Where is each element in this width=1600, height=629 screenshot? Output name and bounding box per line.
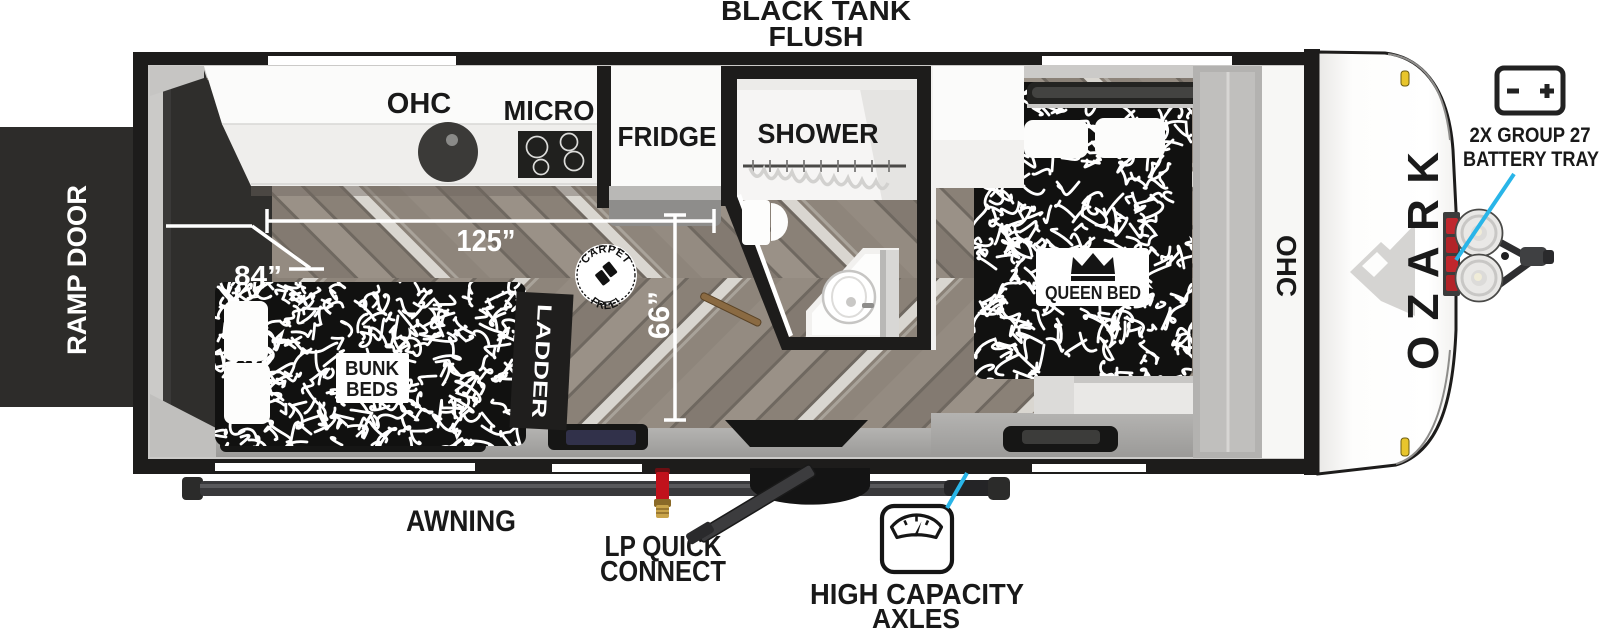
svg-text:AWNING: AWNING (406, 505, 516, 538)
svg-text:MICRO: MICRO (504, 95, 595, 126)
svg-text:OHC: OHC (387, 88, 452, 120)
svg-text:FLUSH: FLUSH (769, 21, 864, 52)
svg-text:FRIDGE: FRIDGE (618, 121, 717, 152)
svg-text:RAMP DOOR: RAMP DOOR (62, 185, 92, 355)
svg-text:BATTERY TRAY: BATTERY TRAY (1463, 147, 1599, 171)
svg-text:OHC: OHC (1271, 235, 1302, 297)
svg-text:QUEEN BED: QUEEN BED (1045, 283, 1141, 303)
svg-text:125”: 125” (457, 223, 516, 258)
svg-text:SHOWER: SHOWER (758, 118, 879, 149)
svg-text:BUNK: BUNK (345, 358, 400, 380)
svg-text:OZARK: OZARK (1399, 152, 1448, 370)
svg-text:CONNECT: CONNECT (600, 556, 726, 588)
svg-text:2X GROUP 27: 2X GROUP 27 (1470, 123, 1591, 147)
svg-text:66”: 66” (643, 291, 676, 339)
svg-text:BEDS: BEDS (346, 379, 398, 401)
svg-text:AXLES: AXLES (872, 603, 960, 629)
svg-text:84”: 84” (234, 260, 282, 291)
